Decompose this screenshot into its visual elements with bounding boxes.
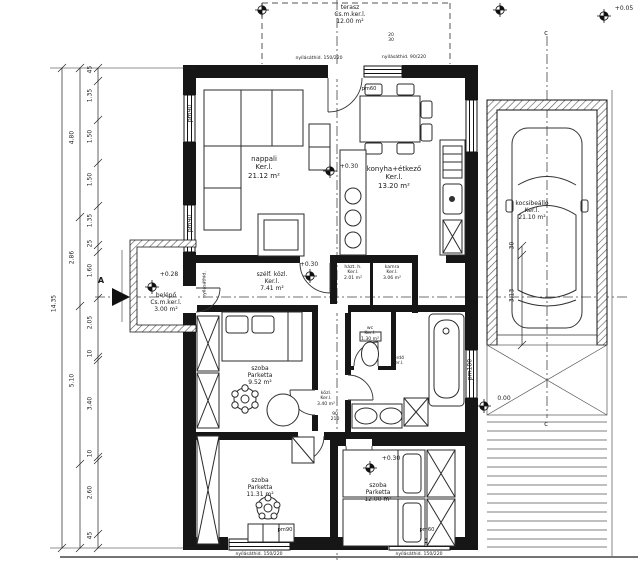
dim-label: 1.50 <box>87 122 94 152</box>
bathtub <box>429 314 464 406</box>
room-floor: Ker.l. <box>234 278 310 285</box>
room-label-szoba1: szoba Parketta 9.52 m² <box>224 365 296 386</box>
room-name: konyha+étkező <box>350 165 438 173</box>
room-label-terasz: terasz Cs.m.ker.l. 12.00 m² <box>312 4 388 25</box>
room-label-kamra: kamra Ker.l. 3.06 m² <box>371 265 413 281</box>
driveway <box>487 90 612 556</box>
dim-label: 1.35 <box>87 81 94 111</box>
room-name: terasz <box>312 4 388 11</box>
dining-table <box>360 84 432 154</box>
dim-label: 10 <box>87 339 94 369</box>
elevation-label: +0.30 <box>336 163 362 170</box>
door-size-label: 90 210 <box>322 412 348 423</box>
plant-2 <box>256 495 280 519</box>
washing-machine <box>404 398 428 426</box>
dim-label: 45 <box>87 521 94 551</box>
room-area: 1.30 m² <box>348 337 392 342</box>
room-area: 7.41 m² <box>234 285 310 292</box>
elevation-label: 0.00 <box>492 395 516 402</box>
survey-point-icon <box>597 9 611 23</box>
dim-overall: 14.35 <box>51 289 58 319</box>
room-area: 21.10 m² <box>496 214 568 221</box>
room-name: belépő <box>134 292 198 299</box>
bed-single-2 <box>343 499 425 546</box>
dim-label: 10 <box>87 439 94 469</box>
dim-label: 3.13 <box>509 281 516 311</box>
door-height: 210 <box>322 417 348 422</box>
room-floor: Ker.l. <box>226 163 302 171</box>
round-table <box>267 394 299 426</box>
washbasins <box>352 404 402 428</box>
wardrobe-tall <box>197 436 219 544</box>
dim-label: 3.40 <box>87 389 94 419</box>
survey-point-icon <box>493 3 507 17</box>
dim-label: 1.50 <box>87 165 94 195</box>
top-small-dims: 20 30 <box>382 33 400 44</box>
room-name: szoba <box>224 365 296 372</box>
lintel-label: nyílásáthid. 150/220 <box>388 552 450 557</box>
wardrobe <box>197 316 219 428</box>
floor-plan-canvas: terasz Cs.m.ker.l. 12.00 m² nappali Ker.… <box>0 0 640 570</box>
room-area: 9.52 m² <box>224 379 296 386</box>
room-label-haztartasi: házt. h. Ker.l. 2.01 m² <box>334 265 372 281</box>
room-area: 2.01 m² <box>334 276 372 281</box>
survey-point-icon <box>255 3 269 17</box>
section-arrow <box>112 288 130 306</box>
parapet-label: pm180 <box>467 355 474 385</box>
room-area: 3.06 m² <box>371 276 413 281</box>
room-area: 3.00 m² <box>134 306 198 313</box>
dim-label: 30 <box>509 231 516 261</box>
room-label-konyha: konyha+étkező Ker.l. 13.20 m² <box>350 165 438 190</box>
dim-label: 2.60 <box>87 478 94 508</box>
dim-label: 1.60 <box>87 256 94 286</box>
kitchen-counter-right <box>440 140 465 255</box>
room-floor: Ker.l. <box>350 173 438 181</box>
dim-label: 4.80 <box>69 123 76 153</box>
section-label-a: A <box>94 276 108 285</box>
room-label-nappali: nappali Ker.l. 21.12 m² <box>226 155 302 180</box>
parapet-label: pm90 <box>272 527 298 533</box>
dim-label: 25 <box>87 229 94 259</box>
elevation-label: +0.05 <box>610 5 638 12</box>
room-floor: Ker.l. <box>496 207 568 214</box>
room-name: szélf. közl. <box>234 271 310 278</box>
survey-point-icon <box>477 399 491 413</box>
room-label-szoba2: szoba Parketta 11.31 m² <box>224 477 296 498</box>
room-label-belepo: belépő Cs.m.ker.l. 3.00 m² <box>134 292 198 313</box>
room-label-szelfogo: szélf. közl. Ker.l. 7.41 m² <box>234 271 310 292</box>
bed-double <box>222 312 302 361</box>
room-name: kocsibeálló <box>496 200 568 207</box>
elevation-label: +0.30 <box>378 455 404 462</box>
room-area: 11.31 m² <box>224 491 296 498</box>
dim-label: 30 <box>382 38 400 43</box>
lintel-label: nyílásáthid. <box>203 260 208 310</box>
room-name: nappali <box>226 155 302 163</box>
room-label-kocsibeallo: kocsibeálló Ker.l. 21.10 m² <box>496 200 568 221</box>
room-area: 12.00 m² <box>312 18 388 25</box>
cabinet <box>292 437 314 463</box>
room-floor: Ker.l. <box>376 361 420 366</box>
room-floor: Cs.m.ker.l. <box>134 299 198 306</box>
room-area: 12.00 m² <box>344 496 412 503</box>
room-floor: Cs.m.ker.l. <box>312 11 388 18</box>
room-name: szoba <box>224 477 296 484</box>
room-area: 13.20 m² <box>350 182 438 190</box>
room-area: 21.12 m² <box>226 172 302 180</box>
elevation-label: +0.30 <box>296 261 322 268</box>
lintel-label: nyílásáthid. 90/220 <box>373 55 435 60</box>
room-floor: Parketta <box>224 484 296 491</box>
room-area: 3.40 m² <box>306 402 346 407</box>
section-label-c-top: c <box>540 29 552 37</box>
parapet-label: pm90 <box>187 209 194 239</box>
room-label-wc: wc Ker.l. 1.30 m² <box>348 326 392 342</box>
section-label-c-bottom: c <box>540 420 552 428</box>
dim-label: 2.05 <box>87 308 94 338</box>
room-name: szoba <box>344 482 412 489</box>
room-label-kozlekedo: közl. Ker.l. 3.40 m² <box>306 391 346 407</box>
elevation-label: +0.28 <box>156 271 182 278</box>
parapet-label: pm60 <box>356 86 382 92</box>
room-floor: Parketta <box>344 489 412 496</box>
parapet-label: pm60 <box>414 527 440 533</box>
tv-cabinet <box>309 124 330 170</box>
dim-label: 5.10 <box>69 366 76 396</box>
dim-label: 2.86 <box>69 243 76 273</box>
parapet-label: pm90 <box>187 99 194 129</box>
lintel-label: nyílásáthid. 150/220 <box>288 56 350 61</box>
plant <box>232 385 258 413</box>
room-label-furdo: fürdő Ker.l. <box>376 356 420 367</box>
room-label-szoba3: szoba Parketta 12.00 m² <box>344 482 412 503</box>
coffee-table <box>258 214 304 256</box>
room-floor: Parketta <box>224 372 296 379</box>
lintel-label: nyílásáthid. 150/220 <box>228 552 290 557</box>
